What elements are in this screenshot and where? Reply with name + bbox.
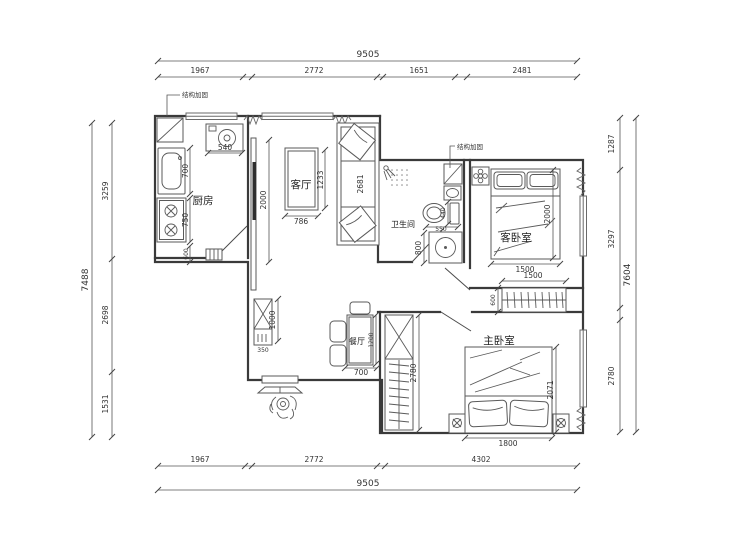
dim-hall-closet-w: 1500: [523, 271, 542, 280]
chair-icon: [330, 321, 346, 342]
dim-shoe-cabinet-h: 1000: [268, 310, 277, 329]
guest-bedroom-door: [445, 268, 470, 290]
dim-tv-wall: 2000: [259, 190, 268, 209]
room-label-living: 客厅: [291, 178, 312, 191]
dim-left-s1: 3259: [101, 181, 110, 200]
dim-shoe-cabinet-w: 350: [257, 347, 269, 354]
dim-right-total: 7604: [623, 263, 633, 286]
annotation-leader: [167, 95, 180, 116]
pillow-icon: [509, 400, 548, 427]
tv-cabinet: [251, 138, 256, 290]
nightstand-icon: [449, 414, 465, 433]
dim-wardrobe: 2780: [409, 363, 418, 382]
dim-right-s3: 2780: [607, 366, 616, 385]
dim-toilet-w: 550: [435, 226, 447, 233]
dim-left-s3: 1531: [101, 394, 110, 413]
dim-top-total: 9505: [357, 50, 380, 60]
chair-icon: [350, 302, 370, 314]
dim-right-s2: 3297: [607, 229, 616, 248]
kitchen-window: [186, 113, 237, 120]
dim-kitchen-stove: 750: [181, 213, 190, 228]
dim-dining-w: 700: [354, 368, 369, 377]
master-bedroom-door: [441, 312, 471, 331]
annotation-bath-reinforce: 结构加固: [457, 142, 483, 151]
dim-master-bed-h: 2071: [546, 380, 555, 399]
annotation-kitchen-reinforce: 结构加固: [182, 90, 208, 99]
room-label-guest-bedroom: 客卧室: [500, 231, 532, 244]
dim-guest-bed-h: 2000: [543, 204, 552, 223]
dim-bath-washer: 800: [414, 241, 423, 256]
entry-door-canopy: [258, 376, 302, 393]
room-label-dining: 餐厅: [349, 337, 365, 346]
chair-icon: [330, 345, 346, 366]
living-room: 客厅: [251, 123, 379, 290]
dim-kitchen-washer: 540: [218, 143, 233, 152]
dim-sofa: 2681: [356, 174, 365, 193]
kitchen-low-cabinet: [206, 249, 222, 260]
dim-bottom-s1: 1967: [190, 455, 209, 464]
dim-kitchen-cabinet: 600: [183, 248, 190, 260]
master-bed: [465, 347, 552, 433]
pillow-icon: [468, 400, 507, 427]
radiator-icon: [244, 116, 262, 124]
room-label-kitchen: 厨房: [193, 194, 214, 207]
master-window: [580, 330, 587, 407]
hall-closet: [502, 288, 566, 312]
dim-top-s3: 1651: [409, 66, 428, 75]
dim-top-s2: 2772: [304, 66, 323, 75]
dim-bottom-total: 9505: [357, 479, 380, 489]
dim-bottom-s2: 2772: [304, 455, 323, 464]
guest-window: [580, 196, 587, 256]
pillow-icon: [494, 172, 525, 189]
dim-top-s1: 1967: [190, 66, 209, 75]
dim-left-total: 7488: [81, 268, 91, 291]
ac-unit-icon: [472, 167, 489, 185]
dim-top-s4: 2481: [512, 66, 531, 75]
bathroom-column: [444, 164, 462, 184]
entry-figure-icon: [270, 396, 296, 419]
nightstand-icon: [553, 414, 569, 433]
dim-right-s1: 1287: [607, 134, 616, 153]
floor-plan-canvas: 结构加固 结构加固 厨房: [0, 0, 740, 555]
living-window: [262, 113, 333, 120]
kitchen-column: [157, 118, 183, 142]
shower-icon: [384, 166, 408, 186]
dim-master-bed-w: 1800: [498, 439, 517, 448]
dim-table-height: 1233: [316, 170, 325, 189]
dim-kitchen-sink: 700: [181, 164, 190, 179]
dining-area: 餐厅: [330, 302, 373, 366]
dim-dining-h: 1200: [368, 332, 375, 347]
room-label-bathroom: 卫生间: [391, 219, 415, 229]
floor-plan-drawing: 结构加固 结构加固 厨房: [0, 0, 740, 555]
dim-table-width: 786: [294, 217, 309, 226]
dim-toilet-h: 440: [440, 207, 447, 219]
room-label-master-bedroom: 主卧室: [483, 334, 515, 347]
dim-bottom-s3: 4302: [471, 455, 490, 464]
washbasin-icon: [444, 186, 461, 200]
dim-left-s2: 2698: [101, 305, 110, 324]
bath-washer-icon: [429, 232, 462, 263]
dim-closet-depth: 600: [490, 294, 497, 306]
